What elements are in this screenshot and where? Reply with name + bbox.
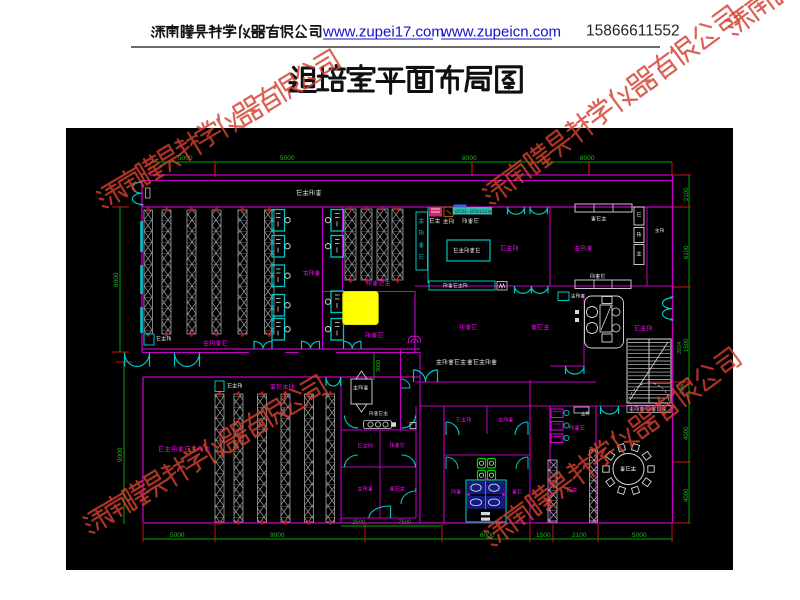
svg-text:8000: 8000 <box>462 155 477 162</box>
svg-text:5000: 5000 <box>632 532 647 539</box>
svg-text:6100: 6100 <box>684 245 690 259</box>
svg-text:9000: 9000 <box>270 532 285 539</box>
svg-text:2100: 2100 <box>684 187 690 201</box>
svg-text:9000: 9000 <box>113 272 120 287</box>
svg-text:5000: 5000 <box>178 155 193 162</box>
svg-text:2024: 2024 <box>677 342 683 354</box>
svg-text:5000: 5000 <box>170 532 185 539</box>
svg-text:15866611552: 15866611552 <box>586 23 680 40</box>
svg-text:4000: 4000 <box>684 426 690 440</box>
svg-text:9000: 9000 <box>117 447 124 462</box>
svg-text:5000: 5000 <box>280 155 295 162</box>
svg-text:8000: 8000 <box>580 155 595 162</box>
svg-text:0531-85919106: 0531-85919106 <box>455 209 494 215</box>
svg-text:2100: 2100 <box>572 532 587 539</box>
svg-text:www.zupeicn.com: www.zupeicn.com <box>440 24 561 41</box>
svg-text:4000: 4000 <box>684 488 690 502</box>
svg-text:3000: 3000 <box>376 360 382 372</box>
svg-text:1500: 1500 <box>536 532 551 539</box>
svg-text:1500: 1500 <box>684 338 690 352</box>
svg-text:www.zupei17.com: www.zupei17.com <box>322 24 444 41</box>
